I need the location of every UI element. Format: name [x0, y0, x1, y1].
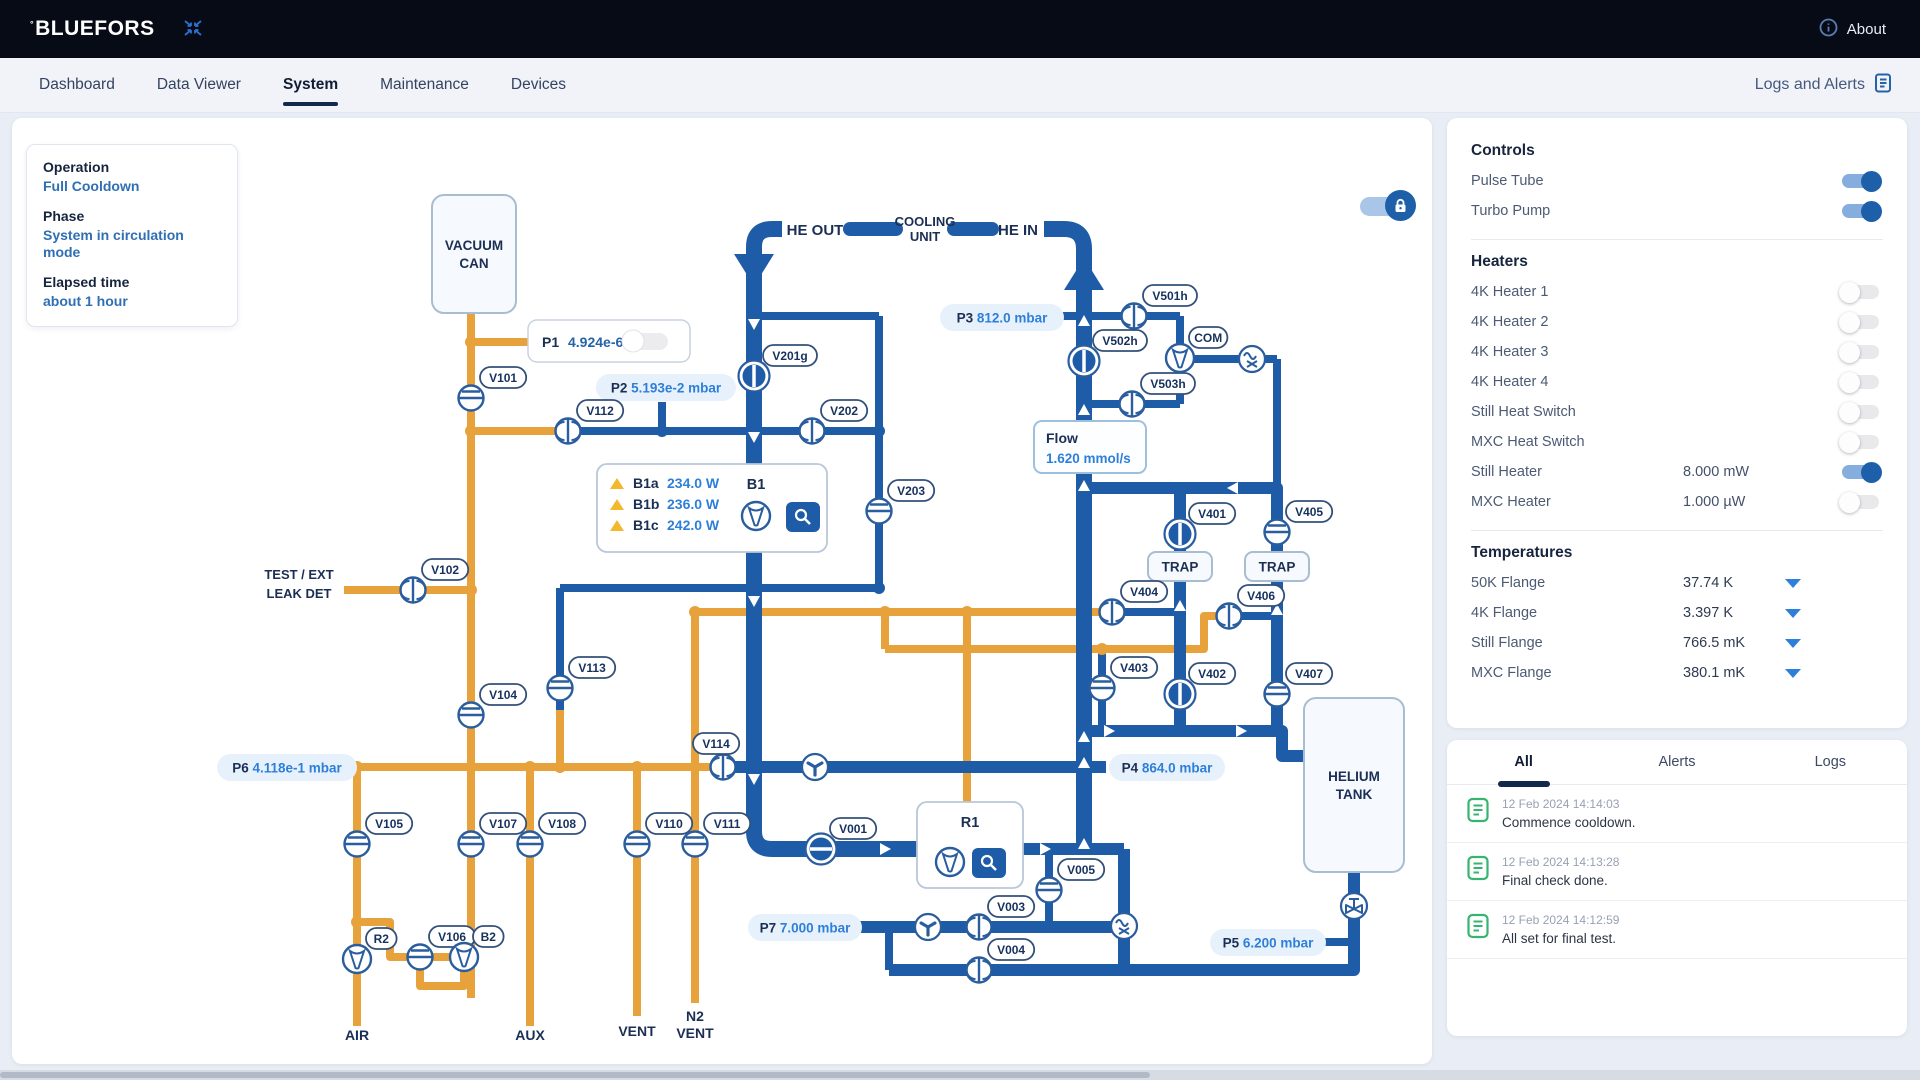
trap-1-box: TRAP: [1148, 552, 1212, 581]
heater-label: Still Heater: [1471, 464, 1683, 480]
diagram-text: V407: [1295, 667, 1323, 681]
still-heat-switch-toggle-knob: [1839, 402, 1860, 423]
control-label: Pulse Tube: [1471, 173, 1683, 189]
logs-link-label: Logs and Alerts: [1755, 76, 1865, 94]
about-label: About: [1847, 21, 1886, 38]
diagram-text: V113: [578, 661, 606, 675]
log-entry-text: 12 Feb 2024 14:13:28Final check done.: [1502, 855, 1619, 888]
diagram-text: R2: [374, 932, 390, 946]
log-tabs: AllAlertsLogs: [1447, 740, 1907, 785]
controls-panel: Controls Pulse TubeTurbo Pump Heaters 4K…: [1447, 118, 1907, 728]
hx-icon: [1111, 913, 1137, 939]
temperatures-title: Temperatures: [1471, 544, 1883, 562]
heater-row: 4K Heater 1: [1471, 277, 1883, 307]
pipe-junction: [879, 606, 891, 618]
pipe-junction: [656, 425, 668, 437]
control-row: Pulse Tube: [1471, 166, 1883, 196]
pipe-junction: [883, 921, 895, 933]
p1-toggle[interactable]: [622, 330, 644, 352]
logs-and-alerts-link[interactable]: Logs and Alerts: [1755, 73, 1892, 98]
pulse-tube-toggle-knob: [1861, 171, 1882, 192]
turbo-pump-toggle[interactable]: [1842, 204, 1879, 218]
gauge-P3: P3 812.0 mbar: [940, 304, 1064, 331]
helium-tank: [1304, 698, 1404, 872]
diagram-text: V203: [897, 484, 925, 498]
about-button[interactable]: About: [1819, 18, 1886, 41]
flow-box: Flow1.620 mmol/s: [1034, 421, 1146, 473]
pipe-junction: [1174, 482, 1186, 494]
r1-pump-box: R1: [917, 802, 1023, 888]
tab-system[interactable]: System: [262, 58, 359, 112]
valve-V503h[interactable]: V503h: [1120, 373, 1196, 417]
diagram-text: VACUUM: [445, 238, 503, 253]
tab-data-viewer[interactable]: Data Viewer: [136, 58, 262, 112]
log-panel: AllAlertsLogs 12 Feb 2024 14:14:03Commen…: [1447, 740, 1907, 1036]
still-heater-toggle-knob: [1861, 462, 1882, 483]
diagram-text: V106: [438, 930, 466, 944]
still-heat-switch-toggle[interactable]: [1842, 405, 1879, 419]
4k-heater-4-toggle[interactable]: [1842, 375, 1879, 389]
log-timestamp: 12 Feb 2024 14:12:59: [1502, 913, 1619, 927]
log-message: All set for final test.: [1502, 931, 1619, 946]
heater-row: 4K Heater 2: [1471, 307, 1883, 337]
heater-row: Still Heat Switch: [1471, 397, 1883, 427]
heater-row: MXC Heater1.000 µW: [1471, 487, 1883, 517]
temperature-label: MXC Flange: [1471, 665, 1683, 681]
tab-maintenance[interactable]: Maintenance: [359, 58, 490, 112]
pipe-junction: [689, 606, 701, 618]
temperature-value: 37.74 K: [1683, 575, 1785, 591]
temperature-label: Still Flange: [1471, 635, 1683, 651]
divider: [1471, 239, 1883, 240]
pipe-junction: [1348, 936, 1360, 948]
r1-zoom-button[interactable]: [972, 848, 1006, 878]
horizontal-scrollbar[interactable]: [0, 1070, 1920, 1080]
pipe-junction: [465, 336, 477, 348]
nav-bar: DashboardData ViewerSystemMaintenanceDev…: [0, 58, 1920, 113]
heater-label: 4K Heater 1: [1471, 284, 1683, 300]
4k-heater-1-toggle[interactable]: [1842, 285, 1879, 299]
valve-V114[interactable]: V114: [693, 733, 739, 780]
mxc-heat-switch-toggle[interactable]: [1842, 435, 1879, 449]
diagram-text: AUX: [515, 1027, 545, 1043]
fan-hub: [926, 925, 930, 929]
valve-V202[interactable]: V202: [800, 400, 868, 444]
diagram-text: V111: [714, 817, 741, 831]
pipe-junction: [465, 425, 477, 437]
gauge-text: P4 864.0 mbar: [1122, 761, 1214, 776]
diagram-text: V005: [1067, 863, 1095, 877]
4k-heater-2-toggle[interactable]: [1842, 315, 1879, 329]
operation-label: Operation: [43, 159, 221, 175]
diagram-text: V105: [375, 817, 403, 831]
log-tab-all[interactable]: All: [1447, 740, 1600, 784]
lock-icon: [1385, 190, 1416, 221]
log-entry[interactable]: 12 Feb 2024 14:12:59All set for final te…: [1447, 901, 1907, 959]
diagram-text: R1: [961, 815, 980, 831]
gauge-text: P2 5.193e-2 mbar: [611, 381, 722, 396]
valve-V102[interactable]: V102: [401, 559, 469, 603]
turbo-pump-toggle-knob: [1861, 201, 1882, 222]
diagram-text: V406: [1247, 589, 1275, 603]
diagram-text: 236.0 W: [667, 496, 720, 512]
temperature-value: 3.397 K: [1683, 605, 1785, 621]
expand-triangle-icon[interactable]: [1785, 579, 1801, 588]
expand-triangle-icon[interactable]: [1785, 609, 1801, 618]
temperature-row: MXC Flange380.1 mK: [1471, 658, 1883, 688]
brand-degree-mark: °: [30, 19, 34, 29]
log-tab-alerts[interactable]: Alerts: [1600, 740, 1753, 784]
expand-triangle-icon[interactable]: [1785, 669, 1801, 678]
diagram-text: VENT: [676, 1025, 714, 1041]
pipe-junction: [873, 425, 885, 437]
valve-COM[interactable]: COM: [1166, 327, 1227, 372]
temperature-label: 4K Flange: [1471, 605, 1683, 621]
pipe-junction: [748, 761, 760, 773]
diagram-text: Flow: [1046, 430, 1078, 446]
log-message: Commence cooldown.: [1502, 815, 1636, 830]
temperature-row: 50K Flange37.74 K: [1471, 568, 1883, 598]
diagram-text: AIR: [345, 1027, 369, 1043]
helium-tank-box: HELIUMTANK: [1304, 698, 1404, 872]
tab-dashboard[interactable]: Dashboard: [18, 58, 136, 112]
fan-hub: [813, 765, 817, 769]
pipe: [1084, 731, 1304, 756]
divider: [1471, 530, 1883, 531]
4k-heater-4-toggle-knob: [1839, 372, 1860, 393]
gauge-text: P3 812.0 mbar: [957, 311, 1049, 326]
diagram-text: B1c: [633, 517, 659, 533]
temperature-row: 4K Flange3.397 K: [1471, 598, 1883, 628]
log-timestamp: 12 Feb 2024 14:13:28: [1502, 855, 1619, 869]
diagram-text: TANK: [1336, 787, 1373, 802]
diagram-text: V001: [839, 822, 867, 836]
diagram-text: V202: [830, 404, 858, 418]
bowtie-icon: [1341, 893, 1367, 919]
heaters-title: Heaters: [1471, 253, 1883, 271]
log-entry[interactable]: 12 Feb 2024 14:13:28Final check done.: [1447, 843, 1907, 901]
fan-icon: [802, 754, 828, 780]
diagram-text: LEAK DET: [267, 586, 332, 601]
gauge-text: P5 6.200 mbar: [1223, 936, 1315, 951]
temperature-row: Still Flange766.5 mK: [1471, 628, 1883, 658]
diagram-text: TRAP: [1162, 560, 1199, 575]
diagram-text: P1: [542, 334, 559, 350]
diagram-text: COM: [1194, 331, 1222, 345]
diagram-text: V402: [1198, 667, 1226, 681]
scrollbar-thumb[interactable]: [0, 1072, 1150, 1078]
log-entry-text: 12 Feb 2024 14:14:03Commence cooldown.: [1502, 797, 1636, 830]
gauge-text: P7 7.000 mbar: [760, 921, 852, 936]
diagram-text: V107: [489, 817, 517, 831]
log-timestamp: 12 Feb 2024 14:14:03: [1502, 797, 1636, 811]
top-bar: °BLUEFORS About: [0, 0, 1920, 58]
diagram-text: 1.620 mmol/s: [1046, 451, 1131, 466]
diagram-text: UNIT: [910, 229, 940, 244]
heater-label: 4K Heater 3: [1471, 344, 1683, 360]
heater-label: MXC Heat Switch: [1471, 434, 1683, 450]
diagram-text: V110: [655, 817, 683, 831]
diagram-text: V401: [1198, 507, 1226, 521]
pipe-junction: [351, 916, 363, 928]
control-row: Turbo Pump: [1471, 196, 1883, 226]
hx-icon: [1239, 346, 1265, 372]
brand-logo: °BLUEFORS: [30, 17, 155, 41]
diagram-text: V003: [997, 900, 1025, 914]
flow-arrow: [1064, 258, 1104, 290]
pipe-junction: [465, 761, 477, 773]
document-icon: [1874, 73, 1892, 98]
diagram-text: 242.0 W: [667, 517, 720, 533]
heater-label: MXC Heater: [1471, 494, 1683, 510]
valve-V112[interactable]: V112: [556, 400, 624, 444]
heater-value: 8.000 mW: [1683, 464, 1842, 480]
heater-row: MXC Heat Switch: [1471, 427, 1883, 457]
vacuum-can-box: VACUUMCAN: [432, 195, 516, 313]
diagram-text: V004: [997, 943, 1025, 957]
diagram-text: V503h: [1150, 377, 1185, 391]
pipe-junction: [1174, 725, 1186, 737]
valve-V501h[interactable]: V501h: [1122, 285, 1198, 329]
fan-icon: [915, 914, 941, 940]
vacuum-can: [432, 195, 516, 313]
diagram-text: B2: [481, 930, 497, 944]
pipe-junction: [1271, 482, 1283, 494]
trap-2-box: TRAP: [1245, 552, 1309, 581]
temperature-label: 50K Flange: [1471, 575, 1683, 591]
pipe: [420, 970, 464, 986]
elapsed-value: about 1 hour: [43, 293, 221, 311]
phase-label: Phase: [43, 208, 221, 224]
4k-heater-3-toggle[interactable]: [1842, 345, 1879, 359]
diagram-text: V102: [431, 563, 459, 577]
diagram-text: TRAP: [1259, 560, 1296, 575]
log-document-icon: [1467, 855, 1489, 888]
pipe-junction: [524, 761, 536, 773]
diagram-text: V501h: [1152, 289, 1187, 303]
diagram-text: CAN: [459, 256, 488, 271]
temperature-value: 380.1 mK: [1683, 665, 1785, 681]
diagram-text: HE OUT: [787, 222, 844, 239]
pipe-junction: [1271, 725, 1283, 737]
heater-label: Still Heat Switch: [1471, 404, 1683, 420]
gauge-P1: P14.924e-6 mbar: [528, 320, 690, 362]
diagram-text: V404: [1130, 585, 1158, 599]
brand-text: BLUEFORS: [35, 17, 155, 41]
diagram-text: COOLING: [895, 214, 956, 229]
log-tab-logs[interactable]: Logs: [1754, 740, 1907, 784]
pipe-junction: [465, 584, 477, 596]
heater-row: Still Heater8.000 mW: [1471, 457, 1883, 487]
gauge-text: P6 4.118e-1 mbar: [232, 761, 342, 776]
pipe-junction: [961, 643, 973, 655]
diagram-text: B1: [747, 477, 766, 493]
pulse-tube-toggle[interactable]: [1842, 174, 1879, 188]
controls-title: Controls: [1471, 142, 1883, 160]
diagram-text: V502h: [1102, 334, 1137, 348]
log-entry[interactable]: 12 Feb 2024 14:14:03Commence cooldown.: [1447, 785, 1907, 843]
diagram-text: V108: [548, 817, 576, 831]
diagram-text: N2: [686, 1008, 704, 1024]
status-card: Operation Full Cooldown Phase System in …: [26, 144, 238, 327]
temperature-value: 766.5 mK: [1683, 635, 1785, 651]
diagram-text: V201g: [772, 349, 807, 363]
4k-heater-2-toggle-knob: [1839, 312, 1860, 333]
pipe-junction: [1118, 964, 1130, 976]
gauge-P5: P5 6.200 mbar: [1210, 929, 1326, 956]
flow-arrow: [734, 254, 774, 286]
nav-tabs: DashboardData ViewerSystemMaintenanceDev…: [18, 58, 587, 112]
heater-label: 4K Heater 2: [1471, 314, 1683, 330]
diagram-lock-toggle[interactable]: [1358, 190, 1416, 222]
phase-value: System in circulation mode: [43, 227, 221, 262]
log-document-icon: [1467, 797, 1489, 830]
log-message: Final check done.: [1502, 873, 1619, 888]
heater-label: 4K Heater 4: [1471, 374, 1683, 390]
log-document-icon: [1467, 913, 1489, 946]
still-heater-toggle[interactable]: [1842, 465, 1879, 479]
elapsed-label: Elapsed time: [43, 274, 221, 290]
diagram-text: 234.0 W: [667, 475, 720, 491]
system-diagram-card: P2 5.193e-2 mbarP3 812.0 mbarP4 864.0 mb…: [12, 118, 1432, 1064]
4k-heater-1-toggle-knob: [1839, 282, 1860, 303]
gauge-P7: P7 7.000 mbar: [748, 914, 862, 941]
pipe-junction: [1096, 643, 1108, 655]
diagram-text: HE IN: [998, 222, 1038, 239]
pipe-junction: [631, 761, 643, 773]
diagram-text: TEST / EXT: [264, 567, 333, 582]
operation-value: Full Cooldown: [43, 178, 221, 196]
diagram-text: V112: [586, 404, 614, 418]
pipe-junction: [554, 761, 566, 773]
mxc-heat-switch-toggle-knob: [1839, 432, 1860, 453]
diagram-text: V114: [702, 737, 730, 751]
diagram-text: HELIUM: [1328, 769, 1380, 784]
valve-V404[interactable]: V404: [1100, 581, 1168, 625]
diagram-text: B1a: [633, 475, 659, 491]
control-label: Turbo Pump: [1471, 203, 1683, 219]
compress-arrows-icon: [183, 18, 203, 43]
gauge-P2: P2 5.193e-2 mbar: [596, 374, 736, 401]
mxc-heater-toggle[interactable]: [1842, 495, 1879, 509]
diagram-text: V403: [1120, 661, 1148, 675]
tab-devices[interactable]: Devices: [490, 58, 587, 112]
gauge-P4: P4 864.0 mbar: [1109, 754, 1225, 781]
diagram-text: B1b: [633, 496, 659, 512]
diagram-text: V405: [1295, 505, 1323, 519]
pipe-junction: [961, 606, 973, 618]
heater-row: 4K Heater 4: [1471, 367, 1883, 397]
b1-heater-box: B1a234.0 WB1b236.0 WB1c242.0 WB1: [597, 464, 827, 552]
diagram-text: VENT: [618, 1023, 656, 1039]
b1-zoom-button[interactable]: [786, 502, 820, 532]
expand-triangle-icon[interactable]: [1785, 639, 1801, 648]
diagram-text: V101: [489, 371, 517, 385]
pipe-junction: [1043, 921, 1055, 933]
gauge-P6: P6 4.118e-1 mbar: [217, 754, 357, 781]
pipe-junction: [689, 761, 701, 773]
heater-row: 4K Heater 3: [1471, 337, 1883, 367]
info-icon: [1819, 18, 1838, 41]
log-entry-text: 12 Feb 2024 14:12:59All set for final te…: [1502, 913, 1619, 946]
pipe-junction: [873, 582, 885, 594]
4k-heater-3-toggle-knob: [1839, 342, 1860, 363]
diagram-text: V104: [489, 688, 517, 702]
mxc-heater-toggle-knob: [1839, 492, 1860, 513]
heater-value: 1.000 µW: [1683, 494, 1842, 510]
